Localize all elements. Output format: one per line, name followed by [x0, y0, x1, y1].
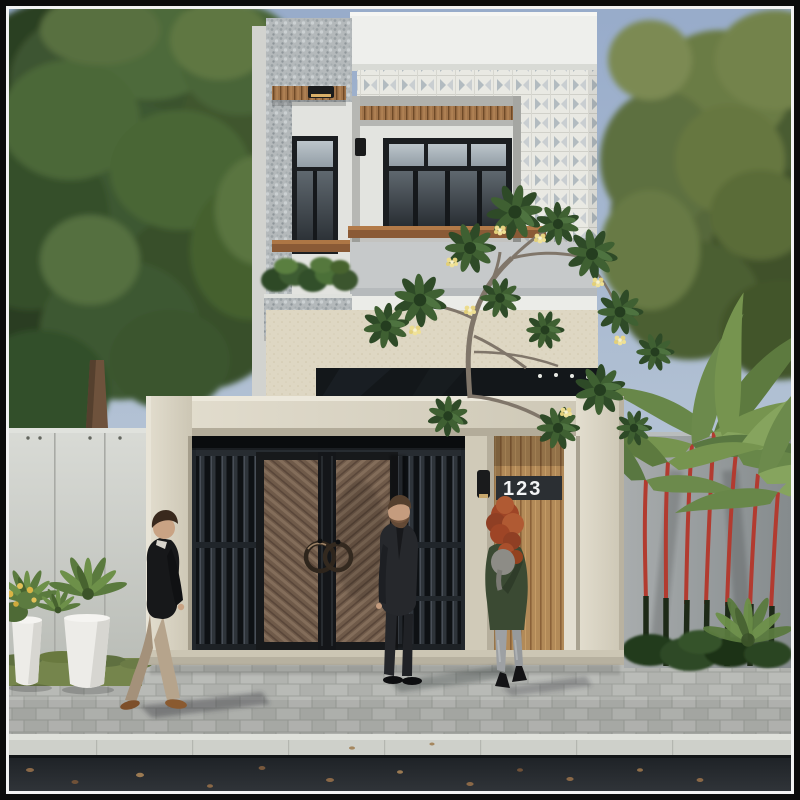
- shoe: [383, 676, 403, 684]
- scarf: [491, 549, 515, 575]
- clerestory-glass-band: [316, 368, 598, 400]
- portal-canopy: [360, 106, 513, 120]
- central-window: [383, 138, 512, 234]
- jeans: [495, 628, 507, 672]
- wall-light-upper: [355, 138, 366, 156]
- parapet: [350, 14, 597, 70]
- gate-right-pillar: [576, 396, 624, 664]
- wall-lamp: [477, 470, 490, 498]
- canopy-light: [308, 86, 334, 98]
- render-canvas: 123: [0, 0, 800, 800]
- scene-svg: 123: [0, 0, 800, 800]
- house-side-wall: [252, 26, 266, 430]
- right-tree: [600, 10, 800, 380]
- house-number: 123: [503, 478, 542, 500]
- left-window: [292, 136, 338, 254]
- curb: [6, 734, 794, 758]
- shoe: [402, 677, 422, 685]
- house-facade: [192, 12, 598, 452]
